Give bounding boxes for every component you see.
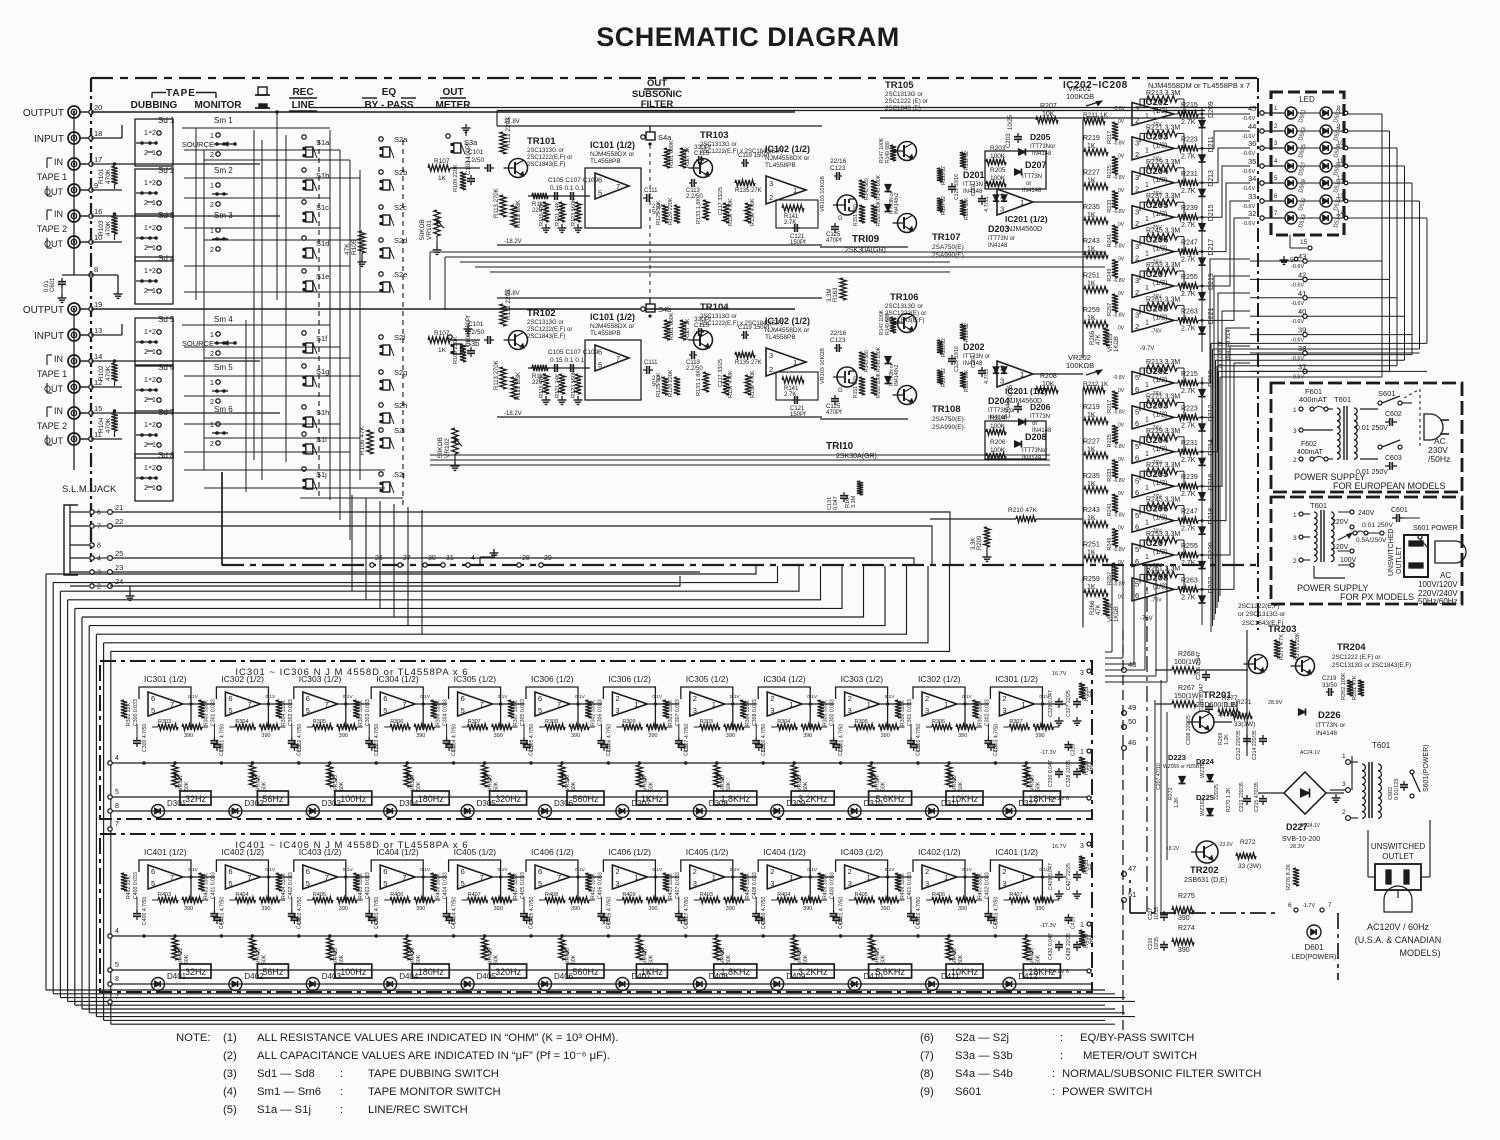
svg-text:R125 10K: R125 10K (656, 200, 662, 225)
svg-text:R278 220K: R278 220K (1295, 632, 1301, 660)
svg-text:390: 390 (494, 906, 503, 912)
svg-text:2SC1843(E,F): 2SC1843(E,F) (527, 162, 565, 168)
svg-text:R113 270K: R113 270K (494, 188, 500, 218)
svg-text:1: 1 (1145, 251, 1149, 258)
svg-text:24.2V 6: 24.2V 6 (1050, 796, 1069, 802)
svg-text:(6): (6) (920, 1032, 934, 1044)
svg-text:50K: 50K (571, 781, 577, 791)
svg-text:IN4148: IN4148 (963, 189, 983, 195)
svg-text:S1i: S1i (316, 435, 327, 444)
svg-text:1: 1 (210, 380, 214, 387)
svg-text:C302 0.033: C302 0.033 (984, 699, 990, 726)
svg-text:5: 5 (1135, 408, 1139, 417)
svg-text:19: 19 (94, 300, 102, 309)
svg-text:IC306 (1/2): IC306 (1/2) (608, 674, 651, 684)
svg-text:IN: IN (54, 354, 63, 364)
svg-text:R143 560: R143 560 (864, 350, 870, 372)
svg-text:R121 24K: R121 24K (555, 201, 561, 226)
svg-text:2SD600(D,E): 2SD600(D,E) (1196, 702, 1238, 709)
svg-text:0V: 0V (1118, 526, 1125, 532)
svg-text:5: 5 (1135, 545, 1139, 554)
svg-text:R306 330K: R306 330K (436, 700, 442, 726)
svg-text:1: 1 (144, 422, 148, 429)
svg-text:IC406 (1/2): IC406 (1/2) (531, 847, 574, 857)
svg-text:C307 0.033: C307 0.033 (675, 699, 681, 726)
svg-text:C300 0.033: C300 0.033 (830, 699, 836, 726)
svg-text:Sm 5: Sm 5 (214, 363, 233, 372)
svg-text:0.1V: 0.1V (807, 867, 818, 873)
svg-text:33/50: 33/50 (1322, 683, 1338, 689)
svg-text:16.7V: 16.7V (1052, 844, 1067, 850)
svg-text:R406: R406 (932, 892, 945, 898)
svg-text:(5): (5) (223, 1104, 237, 1116)
svg-text:13: 13 (94, 326, 102, 335)
svg-text:2.7K: 2.7K (1181, 188, 1196, 195)
svg-text:2.7K: 2.7K (1181, 257, 1196, 264)
svg-text:C308 0.033: C308 0.033 (752, 699, 758, 726)
svg-text:100V/120V: 100V/120V (1418, 580, 1458, 589)
svg-text:D407: D407 (631, 972, 651, 981)
svg-text:R210 47K: R210 47K (1008, 507, 1038, 514)
svg-text:C214 220/35: C214 220/35 (1252, 730, 1258, 760)
svg-text:26: 26 (375, 555, 383, 562)
svg-text:2: 2 (144, 442, 148, 449)
svg-text:2: 2 (152, 465, 156, 472)
svg-text:R307 330K: R307 330K (513, 700, 519, 726)
svg-text:50K: 50K (881, 954, 887, 964)
svg-text:7: 7 (170, 873, 174, 882)
svg-text:C105 C107 C109: C105 C107 C109 (548, 177, 599, 184)
svg-text:BY - PASS: BY - PASS (364, 100, 413, 111)
svg-text:IC403 (1/2): IC403 (1/2) (299, 847, 342, 857)
svg-text:20: 20 (94, 103, 102, 112)
svg-text:SCHEMATIC DIAGRAM: SCHEMATIC DIAGRAM (596, 22, 899, 52)
svg-text:S2f: S2f (394, 333, 406, 342)
svg-text:R307: R307 (468, 719, 481, 725)
svg-text:S1a — S1j: S1a — S1j (257, 1104, 311, 1116)
svg-text:C206 0.047: C206 0.047 (1196, 652, 1202, 680)
svg-text:C603: C603 (1385, 455, 1402, 462)
svg-text:4.7/35: 4.7/35 (984, 369, 990, 384)
svg-text:TAPE 1: TAPE 1 (37, 369, 67, 379)
svg-text:22/16: 22/16 (830, 330, 847, 337)
svg-text:50K: 50K (416, 781, 422, 791)
svg-text:390: 390 (881, 906, 890, 912)
svg-text:2: 2 (1135, 288, 1139, 297)
svg-text:R263: R263 (1181, 308, 1198, 315)
svg-text:0V: 0V (1118, 291, 1125, 297)
svg-text:2SA750(E): 2SA750(E) (932, 416, 964, 423)
svg-text:C307 4.7/50: C307 4.7/50 (684, 724, 690, 752)
svg-text:G: G (838, 388, 843, 394)
svg-text:390: 390 (416, 733, 425, 739)
svg-text:7: 7 (616, 182, 620, 191)
svg-text:R304: R304 (777, 719, 790, 725)
svg-text:C111: C111 (644, 360, 658, 366)
svg-text:0.1V: 0.1V (188, 694, 199, 700)
svg-text:23: 23 (115, 563, 123, 572)
svg-text:R121 24K: R121 24K (555, 373, 561, 398)
svg-text:R403: R403 (700, 892, 713, 898)
svg-text:0.1V: 0.1V (265, 694, 276, 700)
svg-text:32: 32 (1248, 209, 1256, 218)
svg-text:R255: R255 (1181, 274, 1198, 281)
svg-text:1: 1 (793, 358, 797, 367)
svg-text:R407 330K: R407 330K (513, 873, 519, 899)
svg-text:7: 7 (557, 700, 561, 709)
svg-text:R279 4.7K: R279 4.7K (1279, 634, 1285, 660)
svg-text:Sm 4: Sm 4 (214, 315, 233, 324)
svg-text:or: or (1032, 421, 1037, 427)
svg-text:R161 10K: R161 10K (964, 369, 970, 392)
svg-text:TRI10: TRI10 (826, 441, 854, 452)
svg-text:R153 100K: R153 100K (876, 200, 882, 226)
svg-text:2: 2 (1135, 185, 1139, 194)
svg-text:ITT73N: ITT73N (1022, 174, 1042, 180)
svg-text:10: 10 (1337, 141, 1344, 147)
svg-text:6: 6 (306, 694, 310, 703)
svg-text:D405: D405 (477, 972, 497, 981)
svg-text:D311: D311 (941, 799, 960, 808)
svg-text:0.1V: 0.1V (498, 867, 509, 873)
svg-text:R271: R271 (1236, 699, 1252, 706)
svg-text:1: 1 (210, 422, 214, 429)
svg-text:OUTLET: OUTLET (1396, 546, 1403, 574)
svg-text:6: 6 (151, 694, 155, 703)
svg-text:R305 330K: R305 330K (358, 700, 364, 726)
svg-text:0.1V: 0.1V (343, 694, 354, 700)
svg-text:-76V: -76V (1151, 597, 1162, 603)
svg-text:1: 1 (712, 700, 716, 709)
svg-text:INPUT: INPUT (34, 331, 64, 342)
svg-text:TAPE MONITOR SWITCH: TAPE MONITOR SWITCH (368, 1086, 501, 1098)
svg-text:120V: 120V (1332, 544, 1349, 551)
svg-text::: : (340, 1104, 343, 1116)
svg-text:TR201: TR201 (1203, 690, 1232, 701)
svg-text:TR105: TR105 (885, 80, 914, 91)
svg-text:2.7K: 2.7K (1181, 119, 1196, 126)
svg-text:50K: 50K (184, 781, 190, 791)
svg-text:50Hz/60Hz: 50Hz/60Hz (1418, 597, 1458, 606)
svg-text:1: 1 (144, 180, 148, 187)
svg-text:2: 2 (152, 377, 156, 384)
svg-text:D411: D411 (941, 972, 960, 981)
svg-text:S2b: S2b (394, 168, 407, 177)
svg-text:R143 560: R143 560 (864, 178, 870, 200)
svg-text:D206: D206 (1030, 402, 1051, 412)
svg-text:R305: R305 (855, 719, 868, 725)
svg-text:6: 6 (1135, 557, 1139, 566)
svg-text:0.1V: 0.1V (188, 867, 199, 873)
svg-text:ITT73N or: ITT73N or (963, 354, 990, 360)
svg-text:C301 0.033: C301 0.033 (210, 699, 216, 726)
svg-text:TR108: TR108 (932, 404, 961, 415)
svg-text:50K: 50K (494, 781, 500, 791)
svg-text:5: 5 (598, 189, 602, 198)
svg-text:50K: 50K (726, 954, 732, 964)
svg-text:C300 4.7/50: C300 4.7/50 (142, 724, 148, 752)
svg-text:R127 1K: R127 1K (685, 318, 691, 340)
svg-text:C401 4.7/50: C401 4.7/50 (219, 897, 225, 925)
svg-text:2SK30A(GR): 2SK30A(GR) (836, 453, 877, 460)
svg-text:IC402 (1/2): IC402 (1/2) (918, 847, 961, 857)
svg-text:R304 330K: R304 330K (745, 700, 751, 726)
svg-text:0V: 0V (1118, 257, 1125, 263)
svg-text:C427 22/25: C427 22/25 (1066, 863, 1072, 890)
svg-text:IN: IN (54, 406, 63, 416)
svg-text:C103 100Pf: C103 100Pf (466, 315, 472, 347)
svg-text:R137 470K: R137 470K (728, 198, 734, 226)
svg-text:1.2K: 1.2K (1174, 797, 1180, 808)
svg-text:R115 3.3K: R115 3.3K (516, 200, 522, 228)
svg-text:1: 1 (152, 150, 156, 157)
svg-text:C402 0.033: C402 0.033 (288, 872, 294, 899)
svg-text:NJM4558DX or: NJM4558DX or (590, 323, 635, 330)
svg-text:R109 220K: R109 220K (453, 164, 459, 192)
svg-text:470Pf: 470Pf (826, 410, 842, 416)
svg-text:ALL CAPACITANCE VALUES ARE: ALL CAPACITANCE VALUES ARE INDICATED IN … (257, 1050, 610, 1062)
svg-text:R235: R235 (1083, 204, 1100, 211)
svg-text:IC406 (1/2): IC406 (1/2) (608, 847, 651, 857)
svg-text:VR103 10KΩB: VR103 10KΩB (820, 176, 826, 212)
svg-text:R215: R215 (1181, 102, 1198, 109)
svg-text:2.7K: 2.7K (1181, 291, 1196, 298)
svg-text:6: 6 (306, 867, 310, 876)
svg-text:0.1V: 0.1V (652, 867, 663, 873)
svg-text:1: 1 (1145, 554, 1149, 561)
svg-text::: : (1060, 1032, 1063, 1044)
svg-text:IN4148: IN4148 (1032, 151, 1052, 157)
svg-text:2: 2 (152, 225, 156, 232)
svg-text:R209: R209 (977, 535, 983, 550)
svg-text:R223: R223 (1181, 405, 1198, 412)
svg-text:R303: R303 (158, 719, 171, 725)
svg-text:D208: D208 (1025, 432, 1047, 442)
svg-text:2SC1222(E,F) or: 2SC1222(E,F) or (527, 327, 572, 333)
svg-text:R133 1.8K: R133 1.8K (696, 198, 702, 224)
svg-text:C400 0.033: C400 0.033 (133, 872, 139, 899)
svg-text:C428 22/25: C428 22/25 (1066, 933, 1072, 960)
svg-text:1: 1 (1021, 873, 1025, 882)
svg-text:1: 1 (634, 700, 638, 709)
svg-text:R155 22: R155 22 (941, 338, 947, 357)
svg-text:5: 5 (461, 706, 465, 715)
svg-text:50K: 50K (881, 781, 887, 791)
svg-text:C430 0.047: C430 0.047 (1048, 933, 1054, 960)
svg-text:1: 1 (1145, 285, 1149, 292)
svg-text:Sm1 — Sm6: Sm1 — Sm6 (257, 1086, 321, 1098)
svg-text:R159 82: R159 82 (964, 323, 970, 342)
svg-text:-1.7V: -1.7V (1302, 903, 1315, 909)
svg-text:50K: 50K (803, 781, 809, 791)
svg-text:150Pf: 150Pf (790, 240, 806, 246)
svg-text:IC304 (1/2): IC304 (1/2) (763, 674, 806, 684)
svg-text:R231: R231 (1181, 440, 1198, 447)
svg-text:5: 5 (1135, 511, 1139, 520)
svg-text:5: 5 (1290, 257, 1294, 264)
svg-text:3.3M: 3.3M (851, 495, 857, 508)
svg-text:50: 50 (1128, 717, 1136, 726)
svg-text:T601: T601 (1334, 395, 1351, 404)
svg-text:ITT73N or: ITT73N or (988, 236, 1015, 242)
svg-text:TR106: TR106 (890, 292, 919, 303)
svg-text:1: 1 (152, 485, 156, 492)
svg-text:D404: D404 (399, 972, 419, 981)
svg-text:2: 2 (693, 867, 697, 876)
svg-text:R409: R409 (622, 892, 635, 898)
svg-text:IC401 (1/2): IC401 (1/2) (144, 847, 187, 857)
svg-text:2SC1313G or: 2SC1313G or (527, 148, 564, 154)
svg-text:R308: R308 (545, 719, 558, 725)
svg-text:3: 3 (769, 351, 773, 360)
svg-text:390: 390 (726, 733, 735, 739)
svg-text:D209: D209 (1208, 101, 1215, 118)
svg-text:0V: 0V (1118, 560, 1125, 566)
svg-text:R139 470K: R139 470K (750, 370, 756, 398)
svg-text:IN4148x2: IN4148x2 (894, 192, 900, 214)
svg-text:2SC1222(E,F) or: 2SC1222(E,F) or (527, 155, 572, 161)
svg-text:10/25: 10/25 (1008, 384, 1014, 400)
svg-text:50K: 50K (571, 954, 577, 964)
svg-text:1: 1 (152, 288, 156, 295)
svg-text:3: 3 (693, 879, 697, 888)
svg-text:C402 4.7/50: C402 4.7/50 (297, 897, 303, 925)
svg-text:1: 1 (210, 133, 214, 140)
svg-text:AC: AC (1440, 571, 1451, 580)
svg-text:2: 2 (1000, 364, 1004, 373)
svg-text:C219: C219 (1322, 676, 1337, 682)
svg-text:0.01: 0.01 (44, 280, 50, 292)
svg-text:6: 6 (1135, 522, 1139, 531)
svg-text:-0.8V: -0.8V (1113, 478, 1126, 484)
svg-text:3.3M: 3.3M (827, 289, 833, 302)
svg-text:IC404 (1/2): IC404 (1/2) (376, 847, 419, 857)
svg-text:1: 1 (144, 130, 148, 137)
svg-text:390: 390 (571, 733, 580, 739)
svg-text:-9.7V: -9.7V (1140, 346, 1154, 352)
svg-text:C401 0.033: C401 0.033 (907, 872, 913, 899)
svg-text:NOTE:: NOTE: (176, 1032, 211, 1044)
svg-text:3: 3 (1342, 781, 1346, 788)
svg-text:51: 51 (1128, 890, 1136, 899)
svg-text:C302 0.033: C302 0.033 (288, 699, 294, 726)
svg-text:2.7K: 2.7K (1181, 222, 1196, 229)
svg-text:1: 1 (1293, 407, 1297, 414)
svg-text:(1): (1) (223, 1032, 237, 1044)
svg-text:6: 6 (538, 694, 542, 703)
svg-text:FOR EUROPEAN MODELS: FOR EUROPEAN MODELS (1333, 481, 1446, 491)
svg-text:-0.6V: -0.6V (1291, 301, 1304, 307)
svg-text:7: 7 (325, 700, 329, 709)
svg-text::: : (1052, 1068, 1055, 1080)
svg-text:-0.8V: -0.8V (1113, 581, 1126, 587)
svg-text:R131 680K: R131 680K (669, 312, 675, 340)
svg-text:S601: S601 (1378, 389, 1396, 398)
svg-text:-0.6V: -0.6V (1291, 356, 1304, 362)
svg-text:TL4558PB: TL4558PB (590, 330, 621, 337)
svg-text:(7): (7) (920, 1050, 934, 1062)
svg-text:R111 220K: R111 220K (505, 288, 512, 320)
svg-text:0V: 0V (1118, 188, 1125, 194)
svg-text:-76V: -76V (1140, 616, 1153, 622)
svg-text:2: 2 (770, 694, 774, 703)
svg-text:C123: C123 (830, 165, 846, 172)
svg-text:R145 100K: R145 100K (876, 174, 882, 200)
svg-text:2SC1222 (E) or: 2SC1222 (E) or (885, 98, 928, 105)
svg-text:R157 22: R157 22 (941, 368, 947, 387)
svg-text:2SC1843 (E): 2SC1843 (E) (885, 105, 921, 112)
svg-text:48: 48 (1128, 660, 1136, 669)
svg-text:R151 680: R151 680 (853, 204, 859, 226)
svg-text:22/16: 22/16 (830, 158, 847, 165)
svg-text:2: 2 (1000, 192, 1004, 201)
svg-text:470K: 470K (105, 220, 112, 236)
svg-text:2SA750(E): 2SA750(E) (932, 244, 964, 251)
svg-text:AC120V / 60Hz: AC120V / 60Hz (1367, 922, 1430, 932)
svg-text:50K: 50K (726, 781, 732, 791)
svg-text:2.7K: 2.7K (1181, 422, 1196, 429)
svg-text:320Hz: 320Hz (495, 794, 522, 804)
svg-text:180Hz: 180Hz (418, 794, 445, 804)
svg-text:OUT: OUT (647, 78, 667, 89)
svg-text:10/25: 10/25 (1008, 114, 1014, 130)
svg-text::: : (340, 1086, 343, 1098)
svg-text:50K: 50K (1035, 781, 1041, 791)
svg-text:C129 33/16: C129 33/16 (954, 174, 960, 200)
svg-text:C105 C107 C109: C105 C107 C109 (548, 349, 599, 356)
svg-text:50K: 50K (339, 781, 345, 791)
svg-text:24: 24 (115, 577, 123, 586)
svg-text:3: 3 (97, 570, 101, 577)
svg-text:R263: R263 (1181, 577, 1198, 584)
svg-text:2SC1222(E) or: 2SC1222(E) or (885, 310, 926, 317)
svg-text:50K: 50K (494, 954, 500, 964)
svg-text:R125 10K: R125 10K (656, 372, 662, 397)
svg-text:or: or (1026, 181, 1031, 187)
svg-text:1: 1 (144, 329, 148, 336)
svg-text:2SB631 (D,E): 2SB631 (D,E) (1184, 877, 1227, 884)
svg-text:NJM4558DX or: NJM4558DX or (590, 151, 635, 158)
svg-text:0V: 0V (1118, 119, 1125, 125)
svg-text:R307 330K: R307 330K (977, 700, 983, 726)
svg-text:TR204: TR204 (1337, 642, 1366, 653)
svg-text:56Hz: 56Hz (262, 794, 284, 804)
svg-text:D408: D408 (709, 972, 729, 981)
svg-text:15: 15 (94, 404, 102, 413)
svg-text:-0.8V: -0.8V (1113, 513, 1126, 519)
svg-text:METER: METER (436, 100, 472, 111)
svg-text:50K: 50K (184, 954, 190, 964)
svg-text:C402 4.7/50: C402 4.7/50 (916, 897, 922, 925)
svg-text:8: 8 (115, 803, 119, 810)
svg-text:2: 2 (1342, 809, 1346, 816)
svg-text:IC404 (1/2): IC404 (1/2) (763, 847, 806, 857)
svg-text:390: 390 (184, 733, 193, 739)
svg-text:45: 45 (1248, 104, 1256, 113)
svg-text:R406 330K: R406 330K (900, 873, 906, 899)
svg-text:0.047: 0.047 (833, 496, 839, 510)
svg-text:7: 7 (616, 354, 620, 363)
svg-text:560Hz: 560Hz (572, 967, 599, 977)
svg-text:R404: R404 (777, 892, 790, 898)
svg-text:/50Hz: /50Hz (1428, 454, 1450, 464)
svg-text:EQ/BY-PASS SWITCH: EQ/BY-PASS SWITCH (1080, 1032, 1194, 1044)
svg-text:50K: 50K (958, 954, 964, 964)
svg-text:C203: C203 (1006, 133, 1012, 148)
svg-text:-23.0V: -23.0V (1218, 842, 1233, 848)
svg-text:150Pf: 150Pf (790, 412, 806, 418)
svg-text:R402 330K: R402 330K (590, 873, 596, 899)
